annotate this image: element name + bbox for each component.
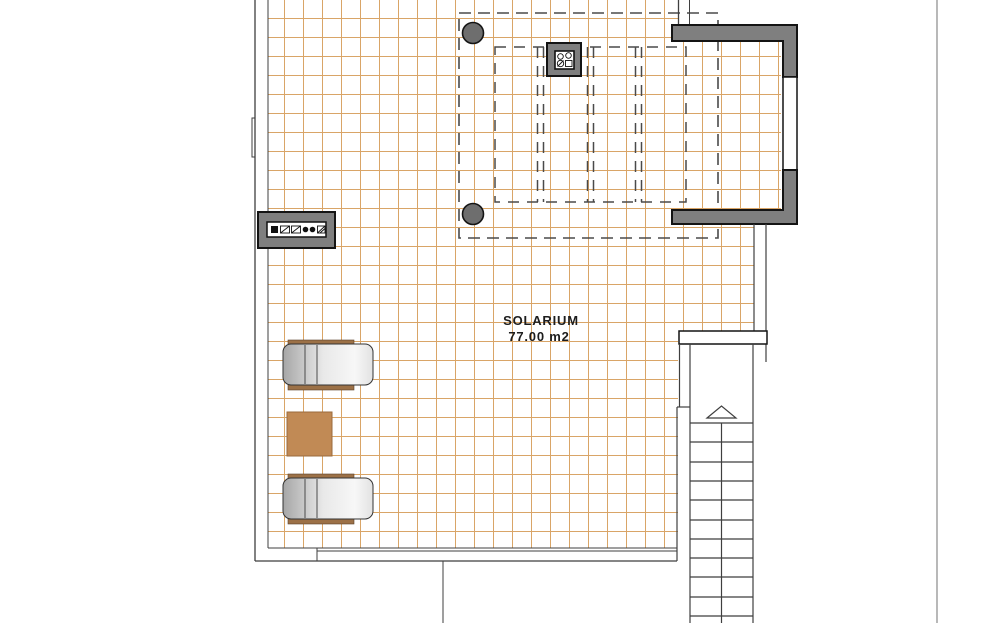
sun-lounger-1 (283, 340, 373, 390)
window-opening (783, 77, 797, 170)
side-table (287, 412, 332, 456)
tile-grid-upper-right (678, 41, 781, 211)
stair-landing (679, 331, 767, 344)
tiled-deck (268, 0, 781, 548)
room-area-label: 77.00 m2 (508, 329, 569, 344)
wall-vent-legend-plate (258, 212, 335, 248)
chimney-vent-icon (547, 43, 581, 76)
column-circle-top (463, 23, 484, 44)
floor-plan-page: SOLARIUM 77.00 m2 (0, 0, 989, 623)
column-circle-bottom (463, 204, 484, 225)
room-label: SOLARIUM (503, 313, 579, 328)
stair-up-arrow-icon (707, 406, 736, 418)
tile-grid-main (268, 0, 678, 548)
tile-grid-lower-right (678, 224, 754, 331)
sun-lounger-2 (283, 474, 373, 524)
floor-plan-canvas: SOLARIUM 77.00 m2 (0, 0, 989, 623)
